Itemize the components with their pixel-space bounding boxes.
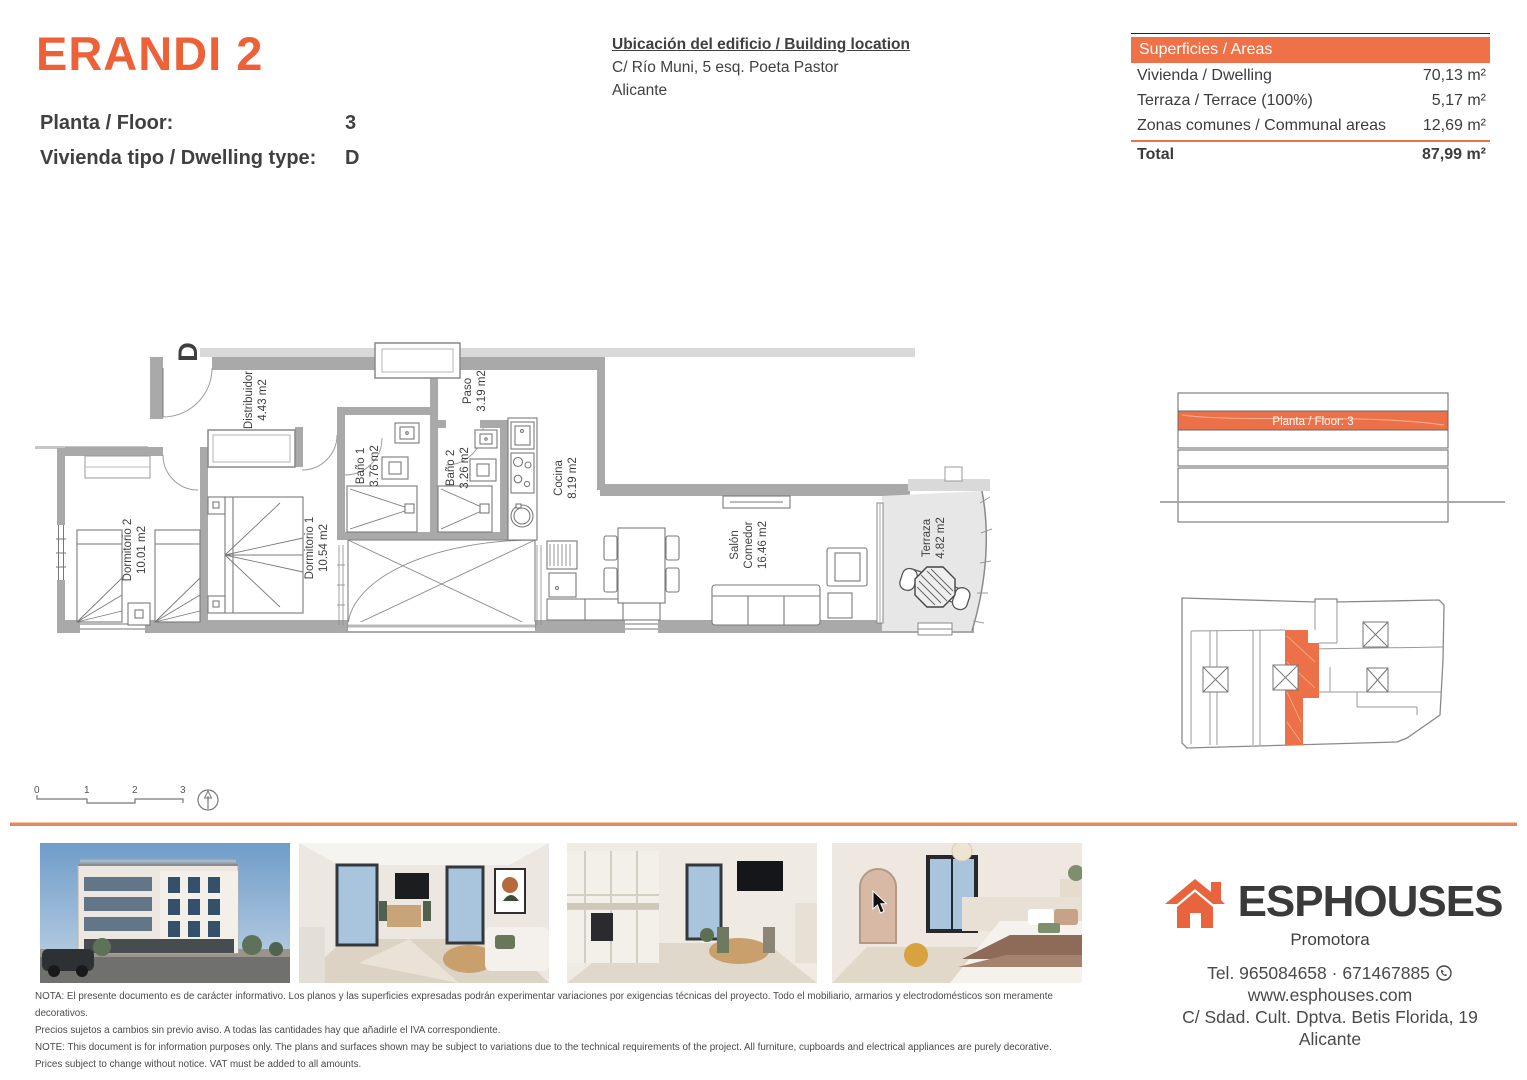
svg-text:0: 0	[34, 785, 40, 796]
disclaimer-line: Prices subject to change without notice.…	[35, 1056, 1095, 1073]
brand-name: ESPHOUSES	[1238, 877, 1503, 927]
photo-bedroom	[832, 843, 1082, 983]
whatsapp-icon	[1435, 964, 1453, 982]
svg-text:Cocina: Cocina	[553, 460, 565, 496]
location-city: Alicante	[612, 79, 910, 102]
patio	[337, 540, 541, 628]
table-total-row: Total 87,99 m²	[1131, 140, 1490, 167]
neighbor-wall-band	[200, 348, 915, 357]
mouse-cursor	[872, 890, 892, 916]
svg-text:1: 1	[84, 785, 90, 796]
svg-text:3.26 m2: 3.26 m2	[459, 447, 471, 489]
svg-text:Dormitorio 1: Dormitorio 1	[304, 517, 316, 580]
svg-text:2: 2	[132, 785, 138, 796]
terrace-floor	[882, 491, 986, 631]
area-value: 5,17 m²	[1432, 89, 1486, 112]
dining-set	[604, 528, 679, 603]
brand-subtitle: Promotora	[1120, 930, 1527, 950]
svg-text:Salón: Salón	[729, 530, 741, 559]
svg-text:4.43 m2: 4.43 m2	[257, 379, 269, 421]
disclaimer-line: NOTA: El presente documento es de caráct…	[35, 988, 1095, 1022]
svg-text:3: 3	[180, 785, 186, 796]
dwelling-type-label: Vivienda tipo / Dwelling type:	[40, 147, 316, 169]
disclaimer-line: Precios sujetos a cambios sin previo avi…	[35, 1022, 1095, 1039]
svg-text:10.54 m2: 10.54 m2	[318, 524, 330, 572]
north-arrow-icon	[198, 790, 218, 810]
wardrobe-dorm1	[208, 430, 295, 467]
svg-text:3.76 m2: 3.76 m2	[369, 445, 381, 487]
photo-building-exterior	[40, 843, 290, 983]
table-row: Terraza / Terrace (100%) 5,17 m²	[1131, 88, 1490, 113]
developer-brand-block: ESPHOUSES Promotora Tel. 965084658 · 671…	[1120, 874, 1527, 1050]
area-label: Zonas comunes / Communal areas	[1137, 114, 1386, 137]
floor-value: 3	[345, 112, 356, 135]
dwelling-type-value: D	[345, 147, 359, 170]
total-value: 87,99 m²	[1422, 143, 1486, 166]
office-city: Alicante	[1120, 1028, 1527, 1050]
svg-text:10.01 m2: 10.01 m2	[136, 526, 148, 574]
dwelling-type-row: Vivienda tipo / Dwelling type: D	[40, 147, 400, 170]
dwelling-letter: D	[173, 342, 203, 362]
svg-text:Dormitorio 2: Dormitorio 2	[122, 519, 134, 582]
area-label: Terraza / Terrace (100%)	[1137, 89, 1313, 112]
shaft-box-inner	[382, 349, 453, 372]
svg-text:8.19 m2: 8.19 m2	[567, 457, 579, 499]
location-street: C/ Río Muni, 5 esq. Poeta Pastor	[612, 56, 910, 79]
svg-text:Paso: Paso	[462, 378, 474, 404]
area-value: 70,13 m²	[1423, 64, 1486, 87]
photo-living-room	[299, 843, 549, 983]
table-row: Vivienda / Dwelling 70,13 m²	[1131, 63, 1490, 88]
building-location: Ubicación del edificio / Building locati…	[612, 33, 910, 102]
esphouses-house-icon	[1158, 874, 1232, 930]
photo-kitchen	[567, 843, 817, 983]
location-title: Ubicación del edificio / Building locati…	[612, 33, 910, 56]
scale-bar-line	[37, 795, 183, 803]
highlighted-floor-label: Planta / Floor: 3	[1272, 416, 1353, 428]
floor-row: Planta / Floor: 3	[40, 112, 400, 135]
office-address: C/ Sdad. Cult. Dptva. Betis Florida, 19	[1120, 1006, 1527, 1028]
svg-text:Terraza: Terraza	[921, 518, 933, 557]
disclaimer: NOTA: El presente documento es de caráct…	[35, 988, 1095, 1073]
floor-plan: D Distribuidor4.43 m2 Dormitorio 210.01 …	[30, 333, 1000, 643]
svg-text:Distribuidor: Distribuidor	[243, 371, 255, 429]
svg-text:Baño 1: Baño 1	[355, 448, 367, 484]
scale-tick-labels: 0 1 2 3	[34, 785, 186, 796]
floor-label: Planta / Floor:	[40, 112, 173, 134]
area-label: Vivienda / Dwelling	[1137, 64, 1272, 87]
svg-text:Comedor: Comedor	[743, 521, 755, 568]
area-value: 12,69 m²	[1423, 114, 1486, 137]
svg-text:4.82 m2: 4.82 m2	[935, 517, 947, 559]
site-key-plan	[1165, 592, 1465, 762]
total-label: Total	[1137, 143, 1174, 166]
phone-numbers: Tel. 965084658 · 671467885	[1207, 962, 1430, 984]
svg-text:Baño 2: Baño 2	[445, 450, 457, 486]
page-title: ERANDI 2	[36, 26, 263, 81]
svg-text:16.46 m2: 16.46 m2	[757, 521, 769, 569]
disclaimer-line: NOTE: This document is for information p…	[35, 1039, 1095, 1056]
areas-table-header: Superficies / Areas	[1131, 37, 1490, 63]
scale-bar: 0 1 2 3	[30, 783, 230, 815]
dorm1-furniture	[208, 497, 303, 613]
divider-rule	[10, 822, 1517, 826]
brochure-page: ERANDI 2 Planta / Floor: 3 Vivienda tipo…	[0, 0, 1527, 1080]
areas-table: Superficies / Areas Vivienda / Dwelling …	[1131, 33, 1490, 167]
website: www.esphouses.com	[1120, 984, 1527, 1006]
svg-text:3.19 m2: 3.19 m2	[476, 370, 488, 412]
table-row: Zonas comunes / Communal areas 12,69 m²	[1131, 113, 1490, 138]
terrace-post	[945, 467, 962, 481]
building-elevation-diagram: Planta / Floor: 3	[1160, 385, 1505, 530]
